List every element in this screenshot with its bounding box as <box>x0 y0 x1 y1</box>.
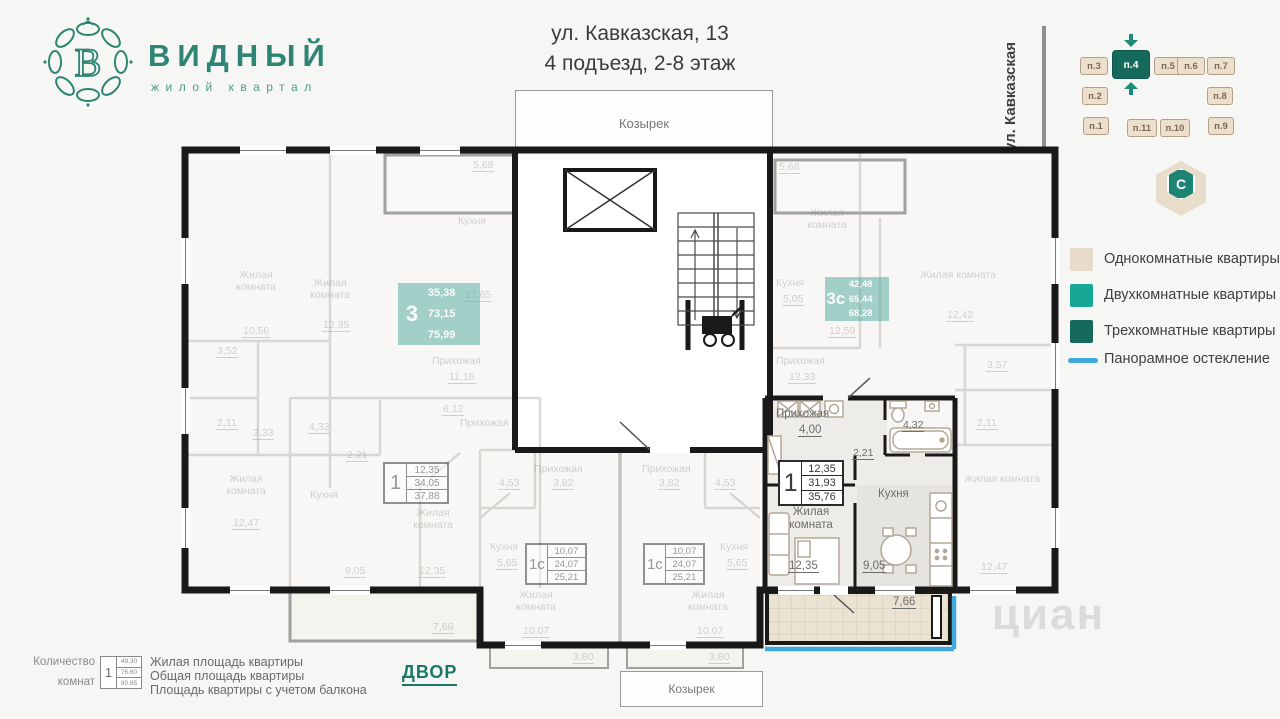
room-label: Жилая комната <box>776 506 846 532</box>
apartment-badge-1-featured[interactable]: 1 12,35 31,93 35,76 <box>778 460 844 506</box>
footnote-living-area: Жилая площадь квартиры <box>150 655 303 669</box>
legend-swatch-three-room <box>1070 320 1093 343</box>
room-label: Прихожая <box>432 356 481 368</box>
room-area: 4,32 <box>902 420 924 432</box>
locator-section-p4-active[interactable]: п.4 <box>1112 50 1150 79</box>
locator-section-p2[interactable]: п.2 <box>1082 87 1108 105</box>
locator-section-p6[interactable]: п.6 <box>1177 57 1205 75</box>
footnote-total-area: Общая площадь квартиры <box>150 669 304 683</box>
featured-balcony <box>767 592 950 643</box>
room-area: 5,65 <box>496 558 518 570</box>
locator-section-p1[interactable]: п.1 <box>1083 117 1109 135</box>
footnote-balcony-area: Площадь квартиры с учетом балкона <box>150 683 367 697</box>
room-area: 12,42 <box>946 310 974 322</box>
room-label: Прихожая <box>460 418 509 430</box>
room-label: Жилая комната <box>676 590 740 614</box>
room-area: 10,07 <box>522 626 550 638</box>
room-area: 5,65 <box>726 558 748 570</box>
legend-label-one-room: Однокомнатные квартиры <box>1104 251 1280 267</box>
room-area: 3,33 <box>252 428 274 440</box>
courtyard-label: ДВОР <box>402 662 457 686</box>
balcony-area: 7,66 <box>892 596 916 609</box>
brand-name: ВИДНЫЙ <box>148 38 332 74</box>
room-label: Прихожая <box>642 464 691 476</box>
room-area: 2,11 <box>976 418 998 430</box>
apartment-badge-1s-left[interactable]: 1с 10,07 24,07 25,21 <box>525 543 587 585</box>
locator-section-p8[interactable]: п.8 <box>1207 87 1233 105</box>
legend-swatch-two-room <box>1070 284 1093 307</box>
room-label: Жилая комната <box>210 474 282 498</box>
room-label: Кухня <box>458 216 486 228</box>
room-area: 3,52 <box>216 346 238 358</box>
apartment-badge-3c[interactable]: 3с 42,48 65,44 68,28 <box>825 277 889 321</box>
room-area: 11,16 <box>448 372 476 384</box>
room-area: 4,53 <box>714 478 736 490</box>
room-label: Жилая комната <box>792 208 862 232</box>
arrow-up-icon <box>1124 82 1138 89</box>
room-label: Прихожая <box>776 408 829 421</box>
room-label: Кухня <box>310 490 338 502</box>
room-label: Жилая комната <box>962 474 1042 486</box>
room-area: 2,21 <box>346 450 368 462</box>
elevator-icon <box>565 170 655 230</box>
room-label: Прихожая <box>776 356 825 368</box>
locator-section-p7[interactable]: п.7 <box>1207 57 1235 75</box>
room-label: Жилая комната <box>918 270 998 282</box>
balcony-area: 5,68 <box>472 160 494 172</box>
room-area: 10,07 <box>696 626 724 638</box>
room-area: 12,35 <box>788 560 819 573</box>
address-line-1: ул. Кавказская, 13 <box>440 22 840 46</box>
locator-section-p3[interactable]: п.3 <box>1080 57 1108 75</box>
balcony-area: 3,80 <box>708 652 730 664</box>
address-line-2: 4 подъезд, 2-8 этаж <box>440 52 840 76</box>
room-area: 12,59 <box>828 326 856 338</box>
room-label: Жилая комната <box>220 270 292 294</box>
rooms-count-caption: комнат <box>20 676 95 688</box>
room-area: 12,35 <box>322 320 350 332</box>
room-label: Прихожая <box>534 464 583 476</box>
locator-section-p11[interactable]: п.11 <box>1127 119 1157 137</box>
legend-label-panoramic-glazing: Панорамное остекление <box>1104 351 1270 367</box>
balcony-area: 7,66 <box>432 622 454 634</box>
legend-label-two-room: Двухкомнатные квартиры <box>1104 287 1276 303</box>
sample-apartment-badge: 1 49,30 76,60 80,95 <box>100 656 142 689</box>
floor-plan: Жилая комната 10,56 Кухня 17,65 Жилая ко… <box>180 88 1060 704</box>
room-area: 9,05 <box>862 560 886 573</box>
legend-line-panoramic-glazing <box>1068 358 1098 363</box>
canopy-bottom: Козырек <box>620 671 763 707</box>
balcony-area: 3,80 <box>572 652 594 664</box>
apartment-badge-1-left[interactable]: 1 12,35 34,05 37,88 <box>383 462 449 504</box>
balcony-area: 5,68 <box>778 162 800 174</box>
balcony-glazing-post <box>932 596 941 638</box>
room-area: 4,53 <box>498 478 520 490</box>
apartment-badge-3[interactable]: 3 35,38 73,15 75,99 <box>398 283 480 345</box>
room-area: 9,05 <box>344 566 366 578</box>
floor-plan-drawing <box>180 88 1060 704</box>
watermark: циан <box>992 590 1105 640</box>
room-area: 6,12 <box>442 404 464 416</box>
room-label: Кухня <box>490 542 518 554</box>
room-area: 4,32 <box>308 422 330 434</box>
room-label: Кухня <box>720 542 748 554</box>
legend-swatch-one-room <box>1070 248 1093 271</box>
logo-letter: В <box>75 40 102 85</box>
canopy-bottom-label: Козырек <box>668 682 714 696</box>
apartment-badge-1s-right[interactable]: 1с 10,07 24,07 25,21 <box>643 543 705 585</box>
arrow-down-icon <box>1124 40 1138 47</box>
room-label: Кухня <box>776 278 804 290</box>
legend-label-three-room: Трехкомнатные квартиры <box>1104 323 1275 339</box>
locator-section-p10[interactable]: п.10 <box>1160 119 1190 137</box>
room-label: Жилая комната <box>504 590 568 614</box>
room-area: 2,11 <box>216 418 238 430</box>
rooms-count-caption: Количество <box>20 656 95 668</box>
room-label: Кухня <box>878 488 909 501</box>
room-area: 3,82 <box>552 478 574 490</box>
room-label: Жилая комната <box>298 278 362 302</box>
room-area: 12,35 <box>418 566 446 578</box>
room-area: 12,47 <box>980 562 1008 574</box>
room-area: 12,47 <box>232 518 260 530</box>
room-area: 2,21 <box>852 448 874 460</box>
room-area: 4,00 <box>798 424 822 437</box>
locator-section-p9[interactable]: п.9 <box>1208 117 1234 135</box>
arrow-up-icon <box>1129 89 1133 95</box>
room-area: 5,05 <box>782 294 804 306</box>
room-label: Жилая комната <box>398 508 468 532</box>
room-area: 3,82 <box>658 478 680 490</box>
room-area: 3,57 <box>986 360 1008 372</box>
room-area: 12,33 <box>788 372 816 384</box>
room-area: 10,56 <box>242 326 270 338</box>
brand-logo-emblem: В <box>42 16 134 108</box>
